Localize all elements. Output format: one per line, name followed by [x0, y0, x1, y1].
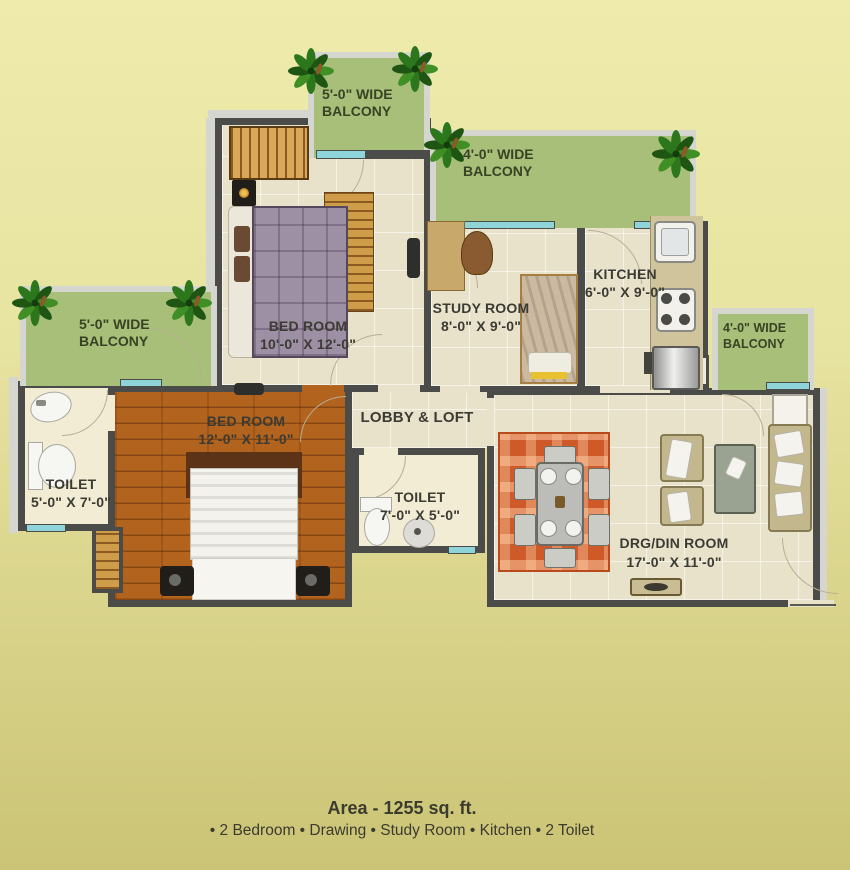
label-toilet1-name: TOILET: [46, 476, 97, 492]
door-opening: [378, 385, 420, 392]
label-balcony-right: 4'-0" WIDE BALCONY: [723, 320, 786, 352]
burner-icon: [679, 293, 690, 304]
entrance-threshold: [790, 604, 836, 606]
label-balcony-top-right: 4'-0" WIDE BALCONY: [463, 146, 534, 180]
wardrobe: [229, 126, 309, 180]
floor-plan: 5'-0" WIDE BALCONY 4'-0" WIDE BALCONY 5'…: [0, 0, 850, 870]
refrigerator: [652, 346, 700, 390]
label-drg-name: DRG/DIN ROOM: [620, 535, 729, 551]
dining-chair: [514, 468, 536, 500]
outer-wall: [9, 377, 18, 533]
plate-icon: [565, 468, 582, 485]
lamp-icon: [239, 188, 249, 198]
pillow: [528, 352, 572, 374]
label-lobby: LOBBY & LOFT: [361, 409, 474, 426]
plant-icon: [166, 280, 212, 326]
label-line: BALCONY: [322, 103, 393, 120]
sink-basin: [661, 228, 689, 256]
outer-wall: [208, 110, 310, 118]
label-toilet2-dims: 7'-0" X 5'-0": [380, 507, 460, 523]
label-toilet1-dims: 5'-0" X 7'-0": [31, 494, 111, 510]
plant-icon: [652, 130, 700, 178]
fridge-handle: [644, 352, 652, 374]
study-desk: [427, 221, 465, 291]
label-bedroom1-dims: 10'-0" X 12'-0": [260, 336, 356, 352]
label-kitchen-name: KITCHEN: [593, 266, 657, 282]
plate-icon: [565, 520, 582, 537]
door-leaf: [407, 238, 420, 278]
label-line: 4'-0" WIDE: [463, 146, 534, 163]
label-bedroom2-name: BED ROOM: [207, 413, 286, 429]
plant-icon: [12, 280, 58, 326]
study-chair: [461, 231, 493, 275]
drain-icon: [414, 528, 421, 535]
label-line: 5'-0" WIDE: [79, 316, 150, 333]
centerpiece-icon: [555, 496, 565, 508]
label-bedroom2-dims: 12'-0" X 11'-0": [198, 431, 293, 447]
window: [448, 546, 476, 554]
label-line: 5'-0" WIDE: [322, 86, 393, 103]
door-opening: [487, 398, 494, 446]
label-balcony-top-left: 5'-0" WIDE BALCONY: [322, 86, 393, 120]
door-handle: [234, 383, 264, 395]
bed-runner: [531, 372, 567, 379]
faucet-icon: [36, 400, 46, 406]
label-bedroom1-name: BED ROOM: [269, 318, 348, 334]
label-line: BALCONY: [79, 333, 150, 350]
burner-icon: [661, 314, 672, 325]
plant-icon: [392, 46, 438, 92]
door-opening: [364, 448, 398, 455]
plate-icon: [540, 520, 557, 537]
footer-features-text: • 2 Bedroom • Drawing • Study Room • Kit…: [0, 822, 804, 840]
cushion: [773, 460, 804, 488]
label-drg-dims: 17'-0" X 11'-0": [626, 554, 721, 570]
dining-chair: [588, 468, 610, 500]
window: [766, 382, 810, 390]
cushion: [666, 491, 692, 524]
side-cabinet: [772, 394, 808, 426]
dining-chair: [544, 548, 576, 568]
pillow: [234, 256, 250, 282]
bed-foot: [192, 558, 296, 600]
burner-icon: [679, 314, 690, 325]
lamp-icon: [169, 574, 181, 586]
outer-wall: [206, 118, 215, 288]
rack-handle: [644, 583, 668, 591]
door-opening: [302, 385, 344, 392]
door-opening: [440, 386, 480, 393]
label-study-name: STUDY ROOM: [433, 300, 530, 316]
label-toilet2-name: TOILET: [395, 489, 446, 505]
dining-chair: [588, 514, 610, 546]
lamp-icon: [305, 574, 317, 586]
window: [26, 524, 66, 532]
window: [316, 150, 366, 159]
double-bed: [190, 468, 298, 560]
coffee-table: [714, 444, 756, 514]
label-line: BALCONY: [463, 163, 534, 180]
plate-icon: [540, 468, 557, 485]
label-line: BALCONY: [723, 336, 786, 352]
cushion: [773, 430, 805, 458]
label-kitchen-dims: 6'-0" X 9'-0": [585, 284, 665, 300]
service-ledge: [92, 527, 123, 593]
label-study-dims: 8'-0" X 9'-0": [441, 318, 521, 334]
label-balcony-left: 5'-0" WIDE BALCONY: [79, 316, 150, 350]
dining-chair: [514, 514, 536, 546]
pillow: [234, 226, 250, 252]
label-line: 4'-0" WIDE: [723, 320, 786, 336]
wall-segment: [366, 150, 430, 159]
footer-area-text: Area - 1255 sq. ft.: [0, 798, 804, 819]
door-opening: [108, 395, 115, 431]
cushion: [774, 491, 804, 518]
